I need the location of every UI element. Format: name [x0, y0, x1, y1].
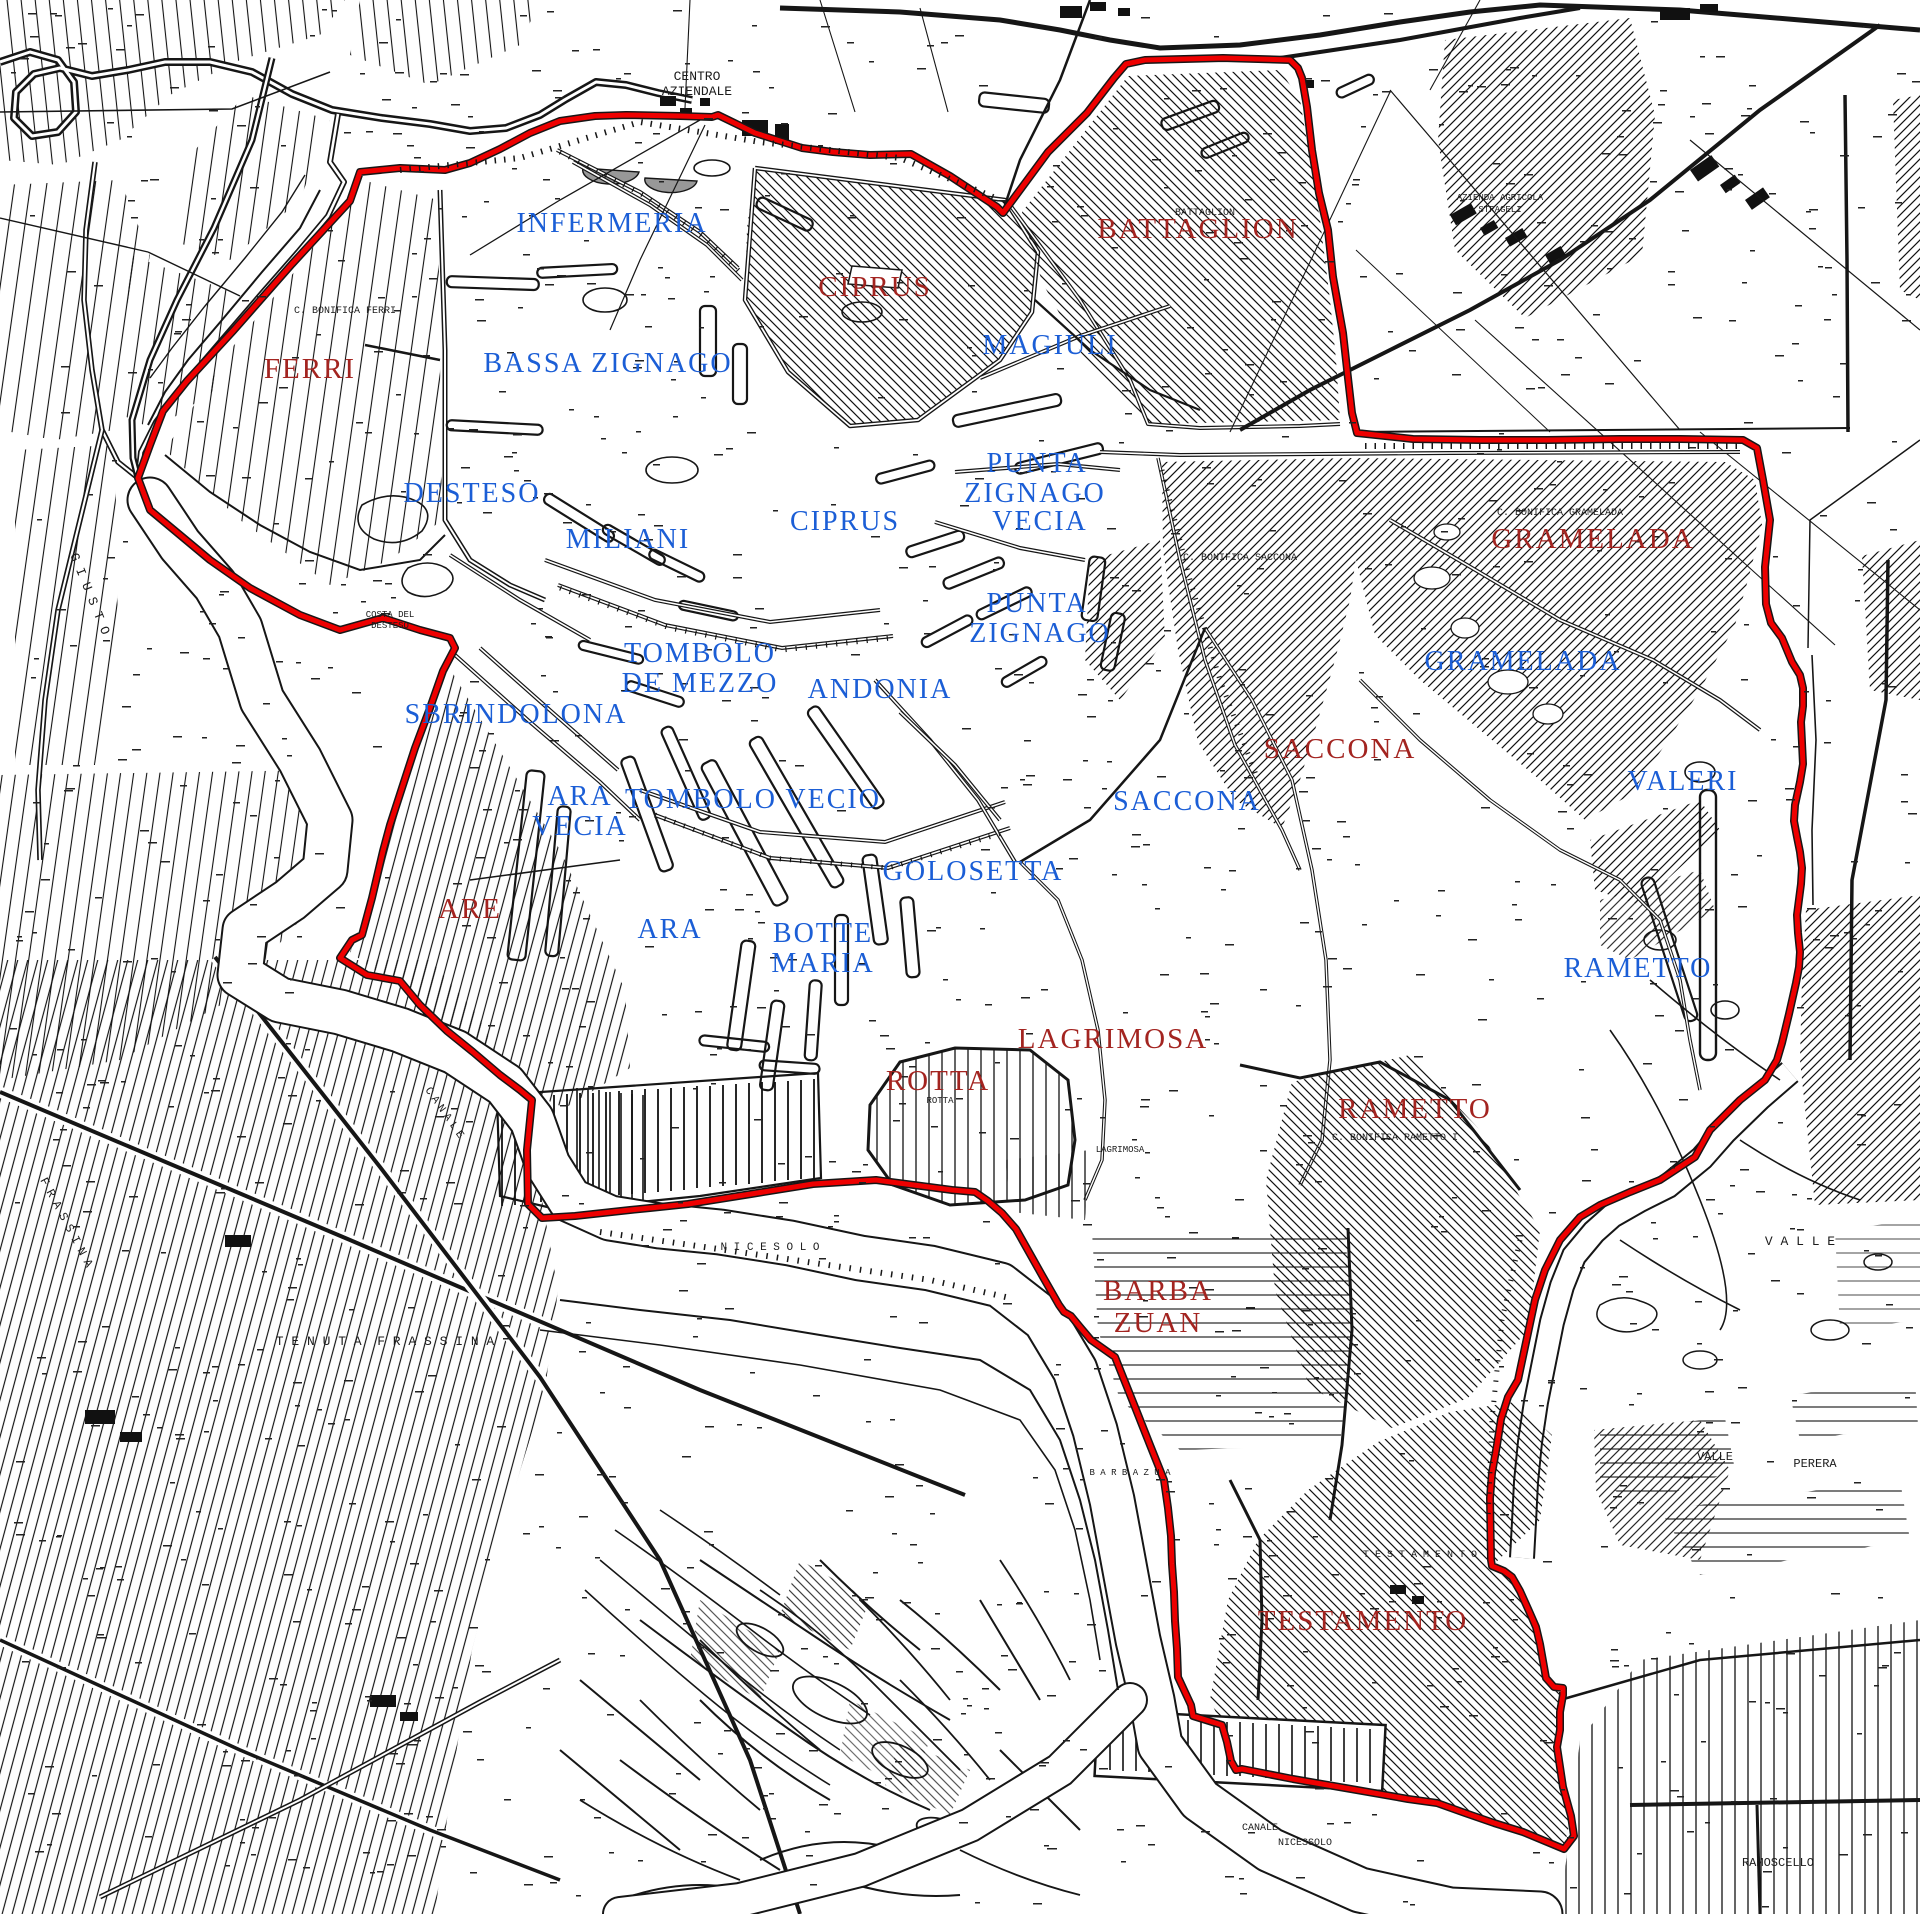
svg-text:BATTAGLION: BATTAGLION: [1175, 208, 1235, 219]
svg-text:GRAMELADA: GRAMELADA: [1491, 523, 1694, 555]
svg-text:PUNTA: PUNTA: [986, 448, 1087, 479]
svg-text:VALERI: VALERI: [1627, 766, 1738, 797]
svg-text:T E S T A M E N T O: T E S T A M E N T O: [1363, 1550, 1477, 1561]
svg-text:DESTESO: DESTESO: [404, 478, 541, 509]
svg-text:DESTESO: DESTESO: [371, 621, 409, 631]
svg-text:PERERA: PERERA: [1793, 1457, 1837, 1471]
svg-text:TOMBOLO VECIO: TOMBOLO VECIO: [625, 784, 881, 815]
svg-text:ARE: ARE: [438, 893, 502, 925]
svg-text:COSTA DEL: COSTA DEL: [366, 610, 415, 620]
svg-text:AZIENDA AGRICOLA: AZIENDA AGRICOLA: [1457, 193, 1544, 203]
svg-text:ROTTA: ROTTA: [886, 1065, 990, 1097]
svg-text:SACCONA: SACCONA: [1264, 733, 1417, 765]
svg-text:ARA: ARA: [547, 781, 612, 812]
svg-text:INFERMERIA: INFERMERIA: [516, 208, 707, 239]
svg-text:N I C E S O L O: N I C E S O L O: [720, 1242, 819, 1254]
svg-text:BASSA ZIGNAGO: BASSA ZIGNAGO: [483, 348, 732, 379]
svg-text:NICESSOLO: NICESSOLO: [1278, 1838, 1332, 1849]
svg-text:LAGRIMOSA: LAGRIMOSA: [1096, 1145, 1145, 1155]
svg-text:GOLOSETTA: GOLOSETTA: [883, 856, 1064, 887]
svg-text:ANDONIA: ANDONIA: [808, 674, 953, 705]
svg-text:CIPRUS: CIPRUS: [818, 271, 932, 303]
svg-text:V A L L E: V A L L E: [1765, 1234, 1835, 1249]
svg-text:PUNTA: PUNTA: [986, 588, 1087, 619]
svg-text:MAGIULI: MAGIULI: [982, 330, 1117, 361]
svg-text:RAMETTO: RAMETTO: [1338, 1093, 1492, 1125]
svg-text:TOMBOLO: TOMBOLO: [624, 638, 776, 669]
svg-text:CANALE: CANALE: [1242, 1823, 1278, 1834]
svg-text:ROTTA: ROTTA: [926, 1096, 954, 1106]
svg-text:CENTRO: CENTRO: [674, 69, 721, 84]
svg-text:MILIANI: MILIANI: [566, 524, 690, 555]
svg-text:C. BONIFICA FERRI: C. BONIFICA FERRI: [294, 306, 396, 317]
svg-text:VECIA: VECIA: [992, 506, 1088, 537]
svg-text:C. BONIFICA GRAMELADA: C. BONIFICA GRAMELADA: [1497, 508, 1623, 519]
svg-text:VALLE: VALLE: [1697, 1450, 1733, 1464]
svg-text:B A R B A Z U A: B A R B A Z U A: [1089, 1468, 1171, 1478]
svg-text:LAGRIMOSA: LAGRIMOSA: [1018, 1023, 1208, 1055]
svg-text:CIPRUS: CIPRUS: [790, 506, 900, 537]
svg-text:FERRI: FERRI: [264, 353, 356, 385]
svg-text:SACCONA: SACCONA: [1113, 786, 1261, 817]
svg-text:RAMOSCELLO: RAMOSCELLO: [1742, 1856, 1814, 1870]
svg-text:ZIGNAGO: ZIGNAGO: [969, 618, 1111, 649]
svg-text:T E N U T A F R A S S I N A: T E N U T A F R A S S I N A: [276, 1334, 495, 1349]
svg-text:ARA: ARA: [637, 914, 702, 945]
svg-text:STRAGELI: STRAGELI: [1478, 205, 1521, 215]
svg-text:BARBA: BARBA: [1103, 1275, 1213, 1307]
svg-text:ZUAN: ZUAN: [1114, 1307, 1203, 1339]
svg-text:RAMETTO: RAMETTO: [1564, 953, 1713, 984]
svg-text:SBRINDOLONA: SBRINDOLONA: [405, 699, 628, 730]
svg-text:VECIA: VECIA: [532, 811, 628, 842]
svg-text:AZIENDALE: AZIENDALE: [662, 84, 732, 99]
svg-text:MARIA: MARIA: [771, 948, 874, 979]
svg-text:TESTAMENTO: TESTAMENTO: [1258, 1605, 1468, 1637]
svg-text:DE MEZZO: DE MEZZO: [622, 668, 779, 699]
svg-text:C. BONIFICA SACCONA: C. BONIFICA SACCONA: [1183, 553, 1297, 564]
svg-text:GRAMELADA: GRAMELADA: [1425, 646, 1622, 677]
svg-text:BOTTE: BOTTE: [773, 918, 873, 949]
svg-text:ZIGNAGO: ZIGNAGO: [964, 478, 1106, 509]
svg-text:C. BONIFICA RAMETTO I: C. BONIFICA RAMETTO I: [1332, 1133, 1458, 1144]
